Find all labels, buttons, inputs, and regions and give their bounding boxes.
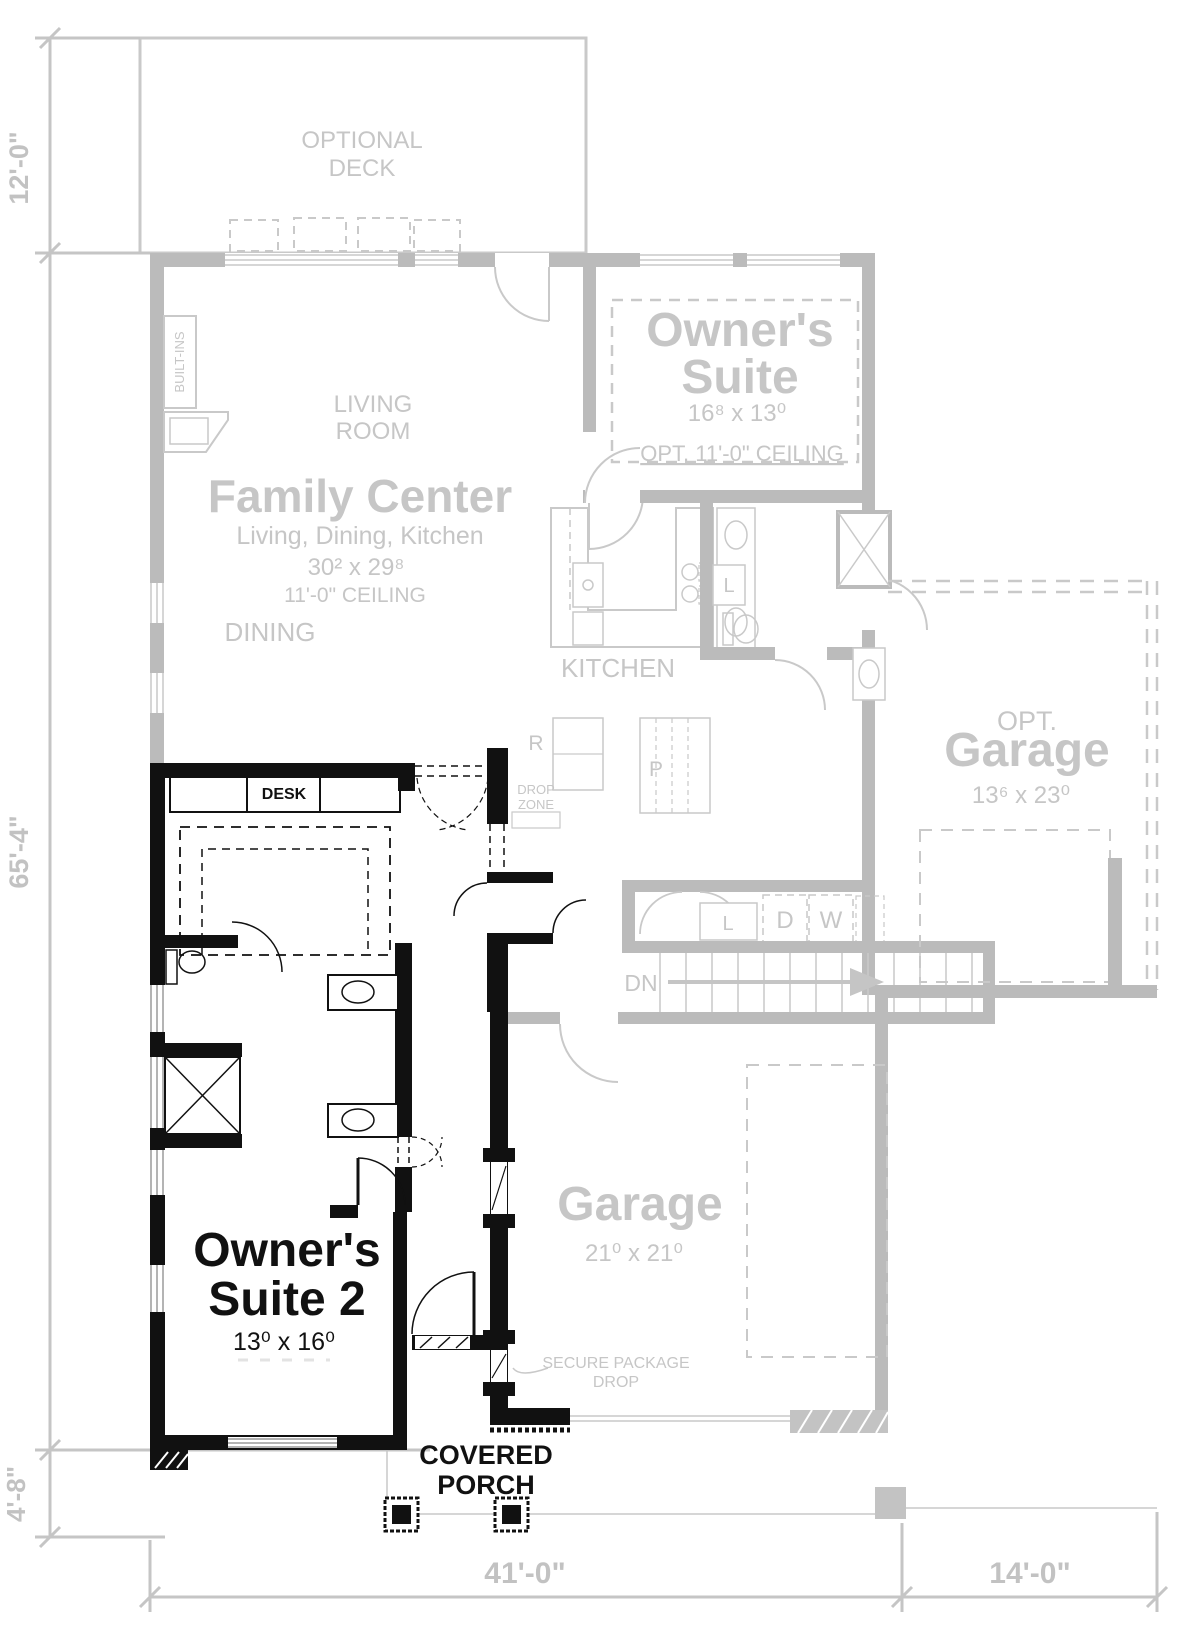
wall-shower <box>150 1134 242 1148</box>
family-center-subtitle: Living, Dining, Kitchen <box>236 522 483 550</box>
wall-wc <box>150 935 238 948</box>
label-stairs-down: DN <box>624 970 657 996</box>
owners-suite-ceiling: OPT. 11'-0" CEILING <box>640 441 844 466</box>
wall-new-right <box>395 1167 412 1212</box>
wall-column <box>487 748 508 824</box>
room-label-optional-deck-1: OPTIONAL <box>301 127 422 154</box>
door-arc <box>412 1272 474 1334</box>
wall-jamb <box>483 1382 515 1396</box>
wall-stairs-top <box>635 941 995 953</box>
room-label-owners-suite-2: Suite <box>681 351 798 404</box>
label-linen: L <box>723 575 734 597</box>
range <box>573 563 603 607</box>
door-opening <box>495 253 549 267</box>
porch-post <box>495 1498 528 1531</box>
label-pantry: P <box>649 758 663 781</box>
door-arc <box>589 495 643 549</box>
lavatory <box>853 648 885 700</box>
label-drop-zone-2: ZONE <box>518 797 554 812</box>
room-label-kitchen: KITCHEN <box>561 653 675 683</box>
family-center-ceiling: 11'-0" CEILING <box>284 584 426 607</box>
floor-plan: 12'-0" 65'-4" 4'-8" 41'-0" 14'-0" OPTION… <box>0 0 1200 1626</box>
toilet-tank <box>166 950 177 984</box>
room-label-covered-porch-2: PORCH <box>437 1470 535 1500</box>
wall-bath <box>700 503 713 660</box>
room-label-opt-garage-2: Garage <box>944 724 1109 777</box>
wall-owners-suite-left <box>583 267 596 432</box>
deck-box <box>294 218 346 251</box>
door-opening <box>585 490 640 503</box>
door-opening <box>775 647 827 660</box>
room-label-owners-suite-1: Owner's <box>646 304 833 357</box>
door-opening <box>560 1012 618 1024</box>
wall-column <box>487 944 508 1012</box>
room-label-owners-suite2-2: Suite 2 <box>208 1273 365 1326</box>
door-arc <box>454 883 487 916</box>
door-arc <box>232 922 282 972</box>
dim-left-top: 12'-0" <box>4 131 34 204</box>
label-built-ins: BUILT-INS <box>172 331 187 392</box>
wall-shower <box>150 1043 242 1057</box>
opt-garage-dims: 13⁶ x 23⁰ <box>972 782 1070 809</box>
wall-hall <box>622 880 875 892</box>
label-washer: W <box>820 907 843 934</box>
garage-door-opening <box>567 1412 790 1425</box>
room-label-living-room-1: LIVING <box>334 391 413 418</box>
owners-suite-dims: 16⁸ x 13⁰ <box>688 400 786 427</box>
vanity <box>328 975 398 1010</box>
deck-box <box>230 220 278 251</box>
cased-opening-arc <box>412 1137 442 1167</box>
door-arc <box>640 892 682 934</box>
wall-opt-garage <box>1108 858 1122 997</box>
wall-jamb <box>483 1148 515 1162</box>
owners-suite2-dims: 13⁰ x 16⁰ <box>233 1328 335 1356</box>
label-fridge: R <box>528 732 543 755</box>
wall-hall <box>622 880 635 953</box>
label-drop-zone-1: DROP <box>517 782 555 797</box>
deck-box <box>414 220 460 251</box>
cabinet <box>573 612 603 645</box>
wall-bedroom-right <box>393 1212 407 1435</box>
wall-new-top <box>150 763 400 778</box>
new-plan-layer <box>147 748 586 1531</box>
room-label-covered-porch-1: COVERED <box>419 1440 553 1470</box>
wall-jamb <box>733 253 747 267</box>
room-label-garage: Garage <box>557 1178 722 1231</box>
family-center-dims: 30² x 29⁸ <box>308 554 405 581</box>
wall-jamb <box>398 253 415 267</box>
dim-bottom-main: 41'-0" <box>484 1557 565 1590</box>
label-dryer: D <box>776 907 793 934</box>
wall-vestibule <box>487 933 553 944</box>
door-arc <box>775 660 825 710</box>
wall-divider <box>330 1205 358 1218</box>
room-label-owners-suite2-1: Owner's <box>193 1224 380 1277</box>
wall-garage-corner <box>490 1408 570 1425</box>
wall-column <box>398 763 415 791</box>
opt-garage-inner-dashed <box>920 830 1110 982</box>
wall-vestibule <box>487 872 553 883</box>
door-arc <box>553 900 586 933</box>
deck-box <box>358 218 410 251</box>
label-closet: L <box>722 913 733 935</box>
dim-bottom-right: 14'-0" <box>989 1557 1070 1590</box>
room-label-living-room-2: ROOM <box>336 418 411 445</box>
garage-dashed-area <box>747 1065 887 1357</box>
wall-opt-garage-bottom <box>875 985 1157 998</box>
porch-post <box>385 1498 418 1531</box>
label-desk: DESK <box>262 786 307 803</box>
room-label-family-center: Family Center <box>208 470 512 522</box>
dim-left-main: 65'-4" <box>4 815 34 888</box>
dim-left-bottom: 4'-8" <box>1 1466 31 1522</box>
door-arc <box>495 267 549 321</box>
label-secure-package-2: DROP <box>593 1374 639 1391</box>
garage-dims: 21⁰ x 21⁰ <box>585 1240 683 1267</box>
room-label-dining: DINING <box>225 617 316 647</box>
drop-zone-bench <box>512 812 560 828</box>
porch-post-gray <box>875 1487 906 1519</box>
floor-plan-drawing: 12'-0" 65'-4" 4'-8" 41'-0" 14'-0" OPTION… <box>0 0 1200 1626</box>
room-label-optional-deck-2: DECK <box>329 155 396 182</box>
door-arc <box>560 1024 618 1082</box>
label-secure-package-1: SECURE PACKAGE <box>542 1355 689 1372</box>
wall-jamb <box>483 1214 515 1228</box>
